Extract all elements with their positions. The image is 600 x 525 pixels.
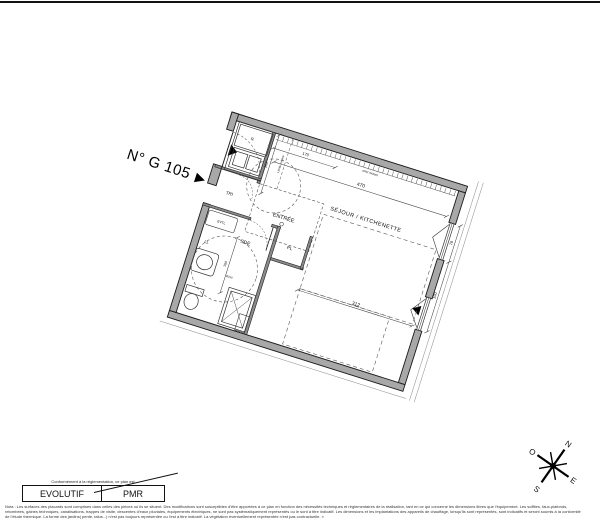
wall-bottom [167,310,405,391]
partition-sde-top-left [203,203,251,220]
exterior-walls [165,111,467,391]
footer-note-line3: de l'étude thermique. La forme des jardi… [5,514,597,519]
dimension-lines [218,130,473,358]
floor-plan-svg: volet roulant R. TRI Limite c [0,0,600,525]
compass-west-label: O [527,447,537,458]
furniture-zone-lower [283,289,390,373]
dim-window-lower: 190 [431,291,438,300]
wall-left-lower [169,203,210,313]
wall-right-upper [449,191,466,225]
shower [218,287,256,332]
floor-plan-rotated-group: volet roulant R. TRI Limite c [160,103,484,403]
dim-kitchen-depth: 162 [262,160,269,169]
dim-top-width: 470 [356,182,366,190]
washing-machine-label: LL [204,239,210,245]
dim-kitchen-width: 170 [302,151,311,158]
facade-band: volet roulant [274,135,456,202]
legend-box-evolutif: EVOLUTIF [22,485,102,502]
sde-room-label: SDE [239,239,251,248]
legend-pmr-label: PMR [123,489,143,499]
wall-left-corner [227,112,239,131]
turning-circle-diameter-label: Ø150 [225,274,233,280]
footer-notes: Nota : Les surfaces des placards sont co… [5,504,597,520]
wall-top [230,112,468,193]
compass-south-label: S [532,484,542,494]
pl-closet-label: PL [286,245,293,252]
refrigerator-label: R. [250,136,255,142]
wall-right-lower [398,329,422,385]
tri-room-label: TRI [225,190,233,197]
dim-sde-height: 150 [223,261,229,268]
compass-north-label: N [563,439,573,450]
partition-pl-right [300,236,313,269]
dim-mid-width: 312 [351,301,361,309]
facade-band-label: volet roulant [362,168,379,177]
windows [405,219,454,331]
plan-sheet: N° G 105 ▶ [0,0,600,525]
partition-pl-bottom [270,257,303,270]
compass-east-label: E [568,476,578,486]
legend-evolutif-label: EVOLUTIF [40,489,84,499]
entree-label: ENTRÉE [272,211,296,224]
dim-window-upper: 78 [448,239,454,245]
entree-symbol-icon [279,222,284,227]
compass-rose: N E S O [511,424,593,508]
washer-slot-label: EVTL [217,219,226,225]
